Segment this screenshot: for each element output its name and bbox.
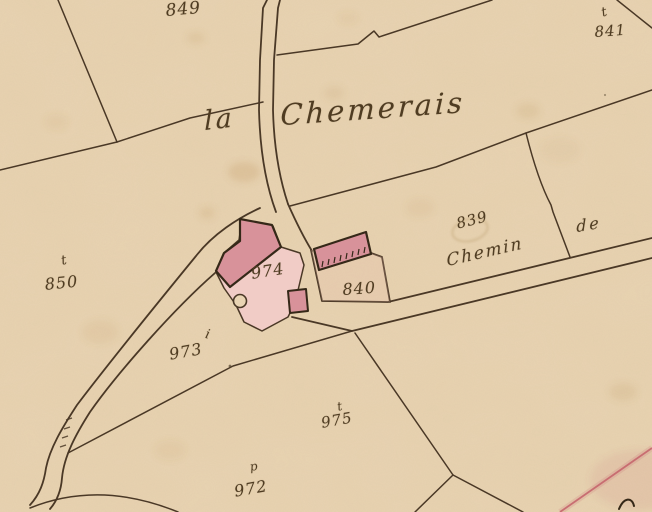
parcel-label-850: 850 bbox=[44, 273, 79, 292]
place-name-article: la bbox=[204, 104, 235, 135]
outbuilding-974 bbox=[288, 289, 308, 313]
road-label-de: de bbox=[576, 215, 602, 236]
map-linework bbox=[0, 0, 652, 512]
cadastral-map-scan: 849 t 841 la Chemerais t 850 839 840 974… bbox=[0, 0, 652, 512]
well-circle bbox=[234, 295, 247, 308]
landuse-symbol-972: p bbox=[249, 460, 258, 473]
parcel-label-840: 840 bbox=[342, 280, 377, 298]
parcel-label-849: 849 bbox=[165, 0, 202, 20]
parcel-label-841: 841 bbox=[594, 23, 627, 40]
